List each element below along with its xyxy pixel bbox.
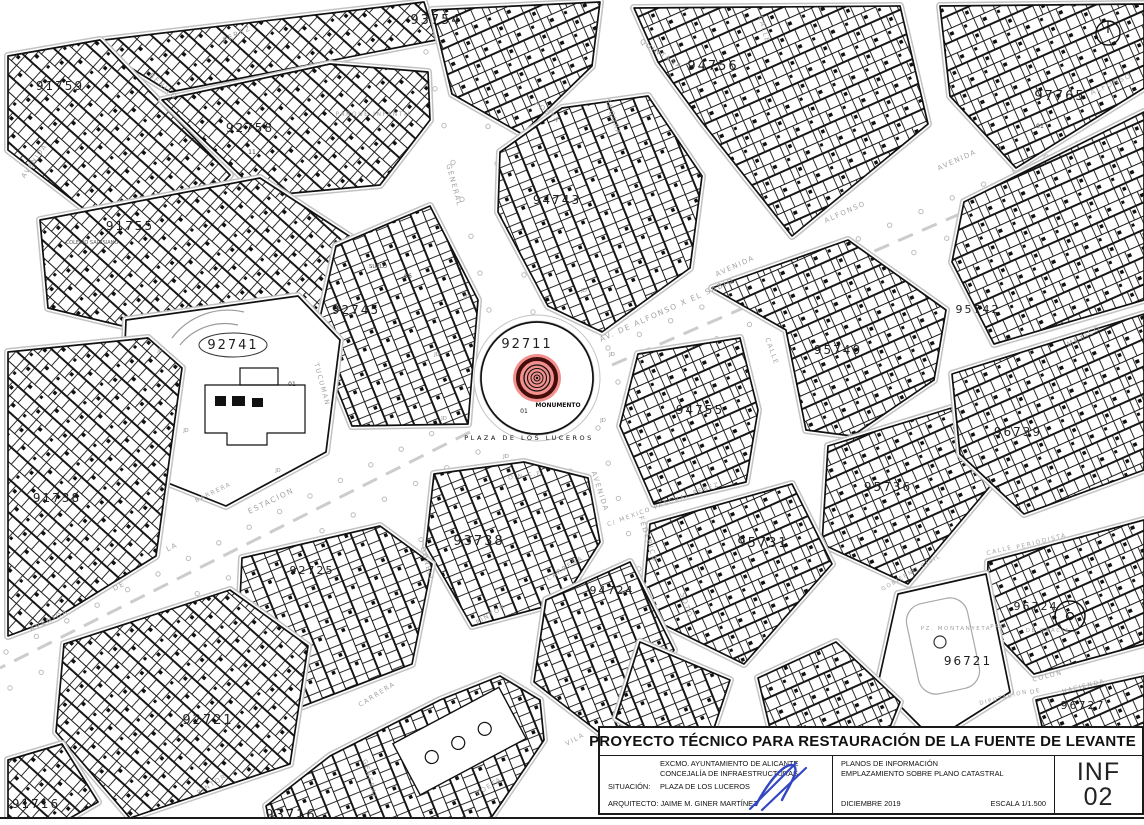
title-block-plan-column: PLANOS DE INFORMACIÓN EMPLAZAMIENTO SOBR…	[832, 756, 1054, 813]
block-number-label: 93738	[453, 534, 504, 549]
map-annotation-label: JD	[599, 418, 606, 424]
map-annotation-label: JD	[274, 468, 280, 474]
sheet-code: INF	[1077, 760, 1120, 785]
street-name-label: PZ. MONTANYETA	[921, 626, 992, 632]
monument-point-label: 01	[520, 408, 528, 415]
plaza-name-label: PLAZA DE LOS LUCEROS	[464, 434, 593, 442]
street-name-label: VILA	[564, 731, 586, 748]
map-annotation-label: SUELO	[369, 264, 388, 270]
map-annotation-label: 11	[248, 149, 256, 156]
street-name-label: DE	[1029, 687, 1042, 697]
block-number-label: 92758	[226, 121, 274, 135]
block-number-label: 95731	[737, 536, 788, 551]
plan-scale: ESCALA 1/1.500	[991, 799, 1046, 809]
block-number-label: 95740	[814, 343, 862, 357]
project-title: PROYECTO TÉCNICO PARA RESTAURACIÓN DE LA…	[600, 728, 1142, 756]
street-name-label: CALLE	[763, 337, 780, 366]
block-number-label: 95736	[864, 480, 912, 494]
map-annotation-label: COLEGIO SALESIANO	[66, 240, 119, 246]
map-annotation-label: 06	[404, 273, 412, 280]
street-name-label: PARQUE INFANTIL	[336, 111, 413, 118]
map-annotation-label: JD	[433, 352, 440, 358]
architect-signature	[738, 753, 830, 811]
block-number-label: 92741	[207, 338, 258, 353]
plan-type-line1: PLANOS DE INFORMACIÓN	[841, 759, 1048, 769]
plaza-de-los-luceros: 92711 MONUMENTO 01 PLAZA DE LOS LUCEROS	[464, 318, 597, 442]
block-number-label: 91755	[106, 219, 154, 233]
arquitecto-label: ARQUITECTO:	[608, 799, 658, 808]
street-name-label: GENERAL	[444, 163, 463, 208]
street-name-label: PRQ.	[990, 624, 1010, 630]
city-block	[498, 96, 702, 332]
sheet-id: INF 02	[1054, 756, 1142, 813]
monument-label: MONUMENTO	[535, 402, 580, 409]
block-number-label: 94743	[533, 193, 581, 207]
cadastral-map: 92711 MONUMENTO 01 PLAZA DE LOS LUCEROS …	[0, 0, 1144, 825]
street-name-label: DE GRACIA	[1026, 628, 1071, 634]
block-number-label: 94755	[676, 403, 724, 417]
city-block	[56, 590, 308, 818]
sheet-frame-bottom	[0, 817, 1144, 825]
title-block: PROYECTO TÉCNICO PARA RESTAURACIÓN DE LA…	[598, 726, 1144, 815]
block-number-label: 91716	[12, 797, 60, 811]
block-number-label: 96721	[944, 654, 992, 668]
block-number-label: 95742	[956, 303, 1001, 316]
map-annotation-label: JD	[502, 454, 509, 460]
block-number-label: 94724	[590, 584, 635, 597]
situacion-value: PLAZA DE LOS LUCEROS	[660, 782, 750, 792]
street-name-label: LA	[165, 541, 179, 553]
map-annotation-label: 01	[1036, 123, 1044, 130]
map-annotation-label: 01	[288, 381, 296, 388]
block-number-label: 94756	[687, 59, 738, 74]
map-annotation-label: JD	[440, 416, 447, 422]
block-number-label: 96724	[1014, 600, 1059, 613]
map-annotation-label: JD	[463, 294, 470, 300]
block-number-label: 91738	[33, 491, 81, 505]
map-annotation-label: JD	[156, 348, 162, 354]
street-name-label: AVENIDA	[936, 148, 978, 172]
sheet-number: 02	[1084, 785, 1114, 810]
block-number-label: 96739	[994, 425, 1042, 439]
plan-date: DICIEMBRE 2019	[841, 799, 901, 809]
cadastral-plan-sheet: 92711 MONUMENTO 01 PLAZA DE LOS LUCEROS …	[0, 0, 1144, 825]
situacion-label: SITUACIÓN:	[608, 782, 660, 792]
plaza-parcel-number: 92711	[501, 337, 552, 352]
map-annotation-label: JD	[580, 288, 587, 294]
block-number-label: 92725	[290, 564, 335, 577]
block-number-label: 93754	[410, 13, 461, 28]
block-number-label: 91759	[36, 79, 84, 93]
block-number-label: 96727	[1061, 699, 1106, 712]
title-block-owner-column: EXCMO. AYUNTAMIENTO DE ALICANTE CONCEJAL…	[600, 756, 832, 813]
map-annotation-label: JD	[182, 428, 188, 434]
block-number-label: 97765	[1034, 89, 1085, 104]
block-number-label: 92721	[182, 713, 233, 728]
fountain-monument	[513, 354, 561, 402]
map-annotation-label: JD	[608, 352, 615, 358]
block-number-label: 92745	[332, 303, 380, 317]
plan-type-line2: EMPLAZAMIENTO SOBRE PLANO CATASTRAL	[841, 769, 1048, 779]
